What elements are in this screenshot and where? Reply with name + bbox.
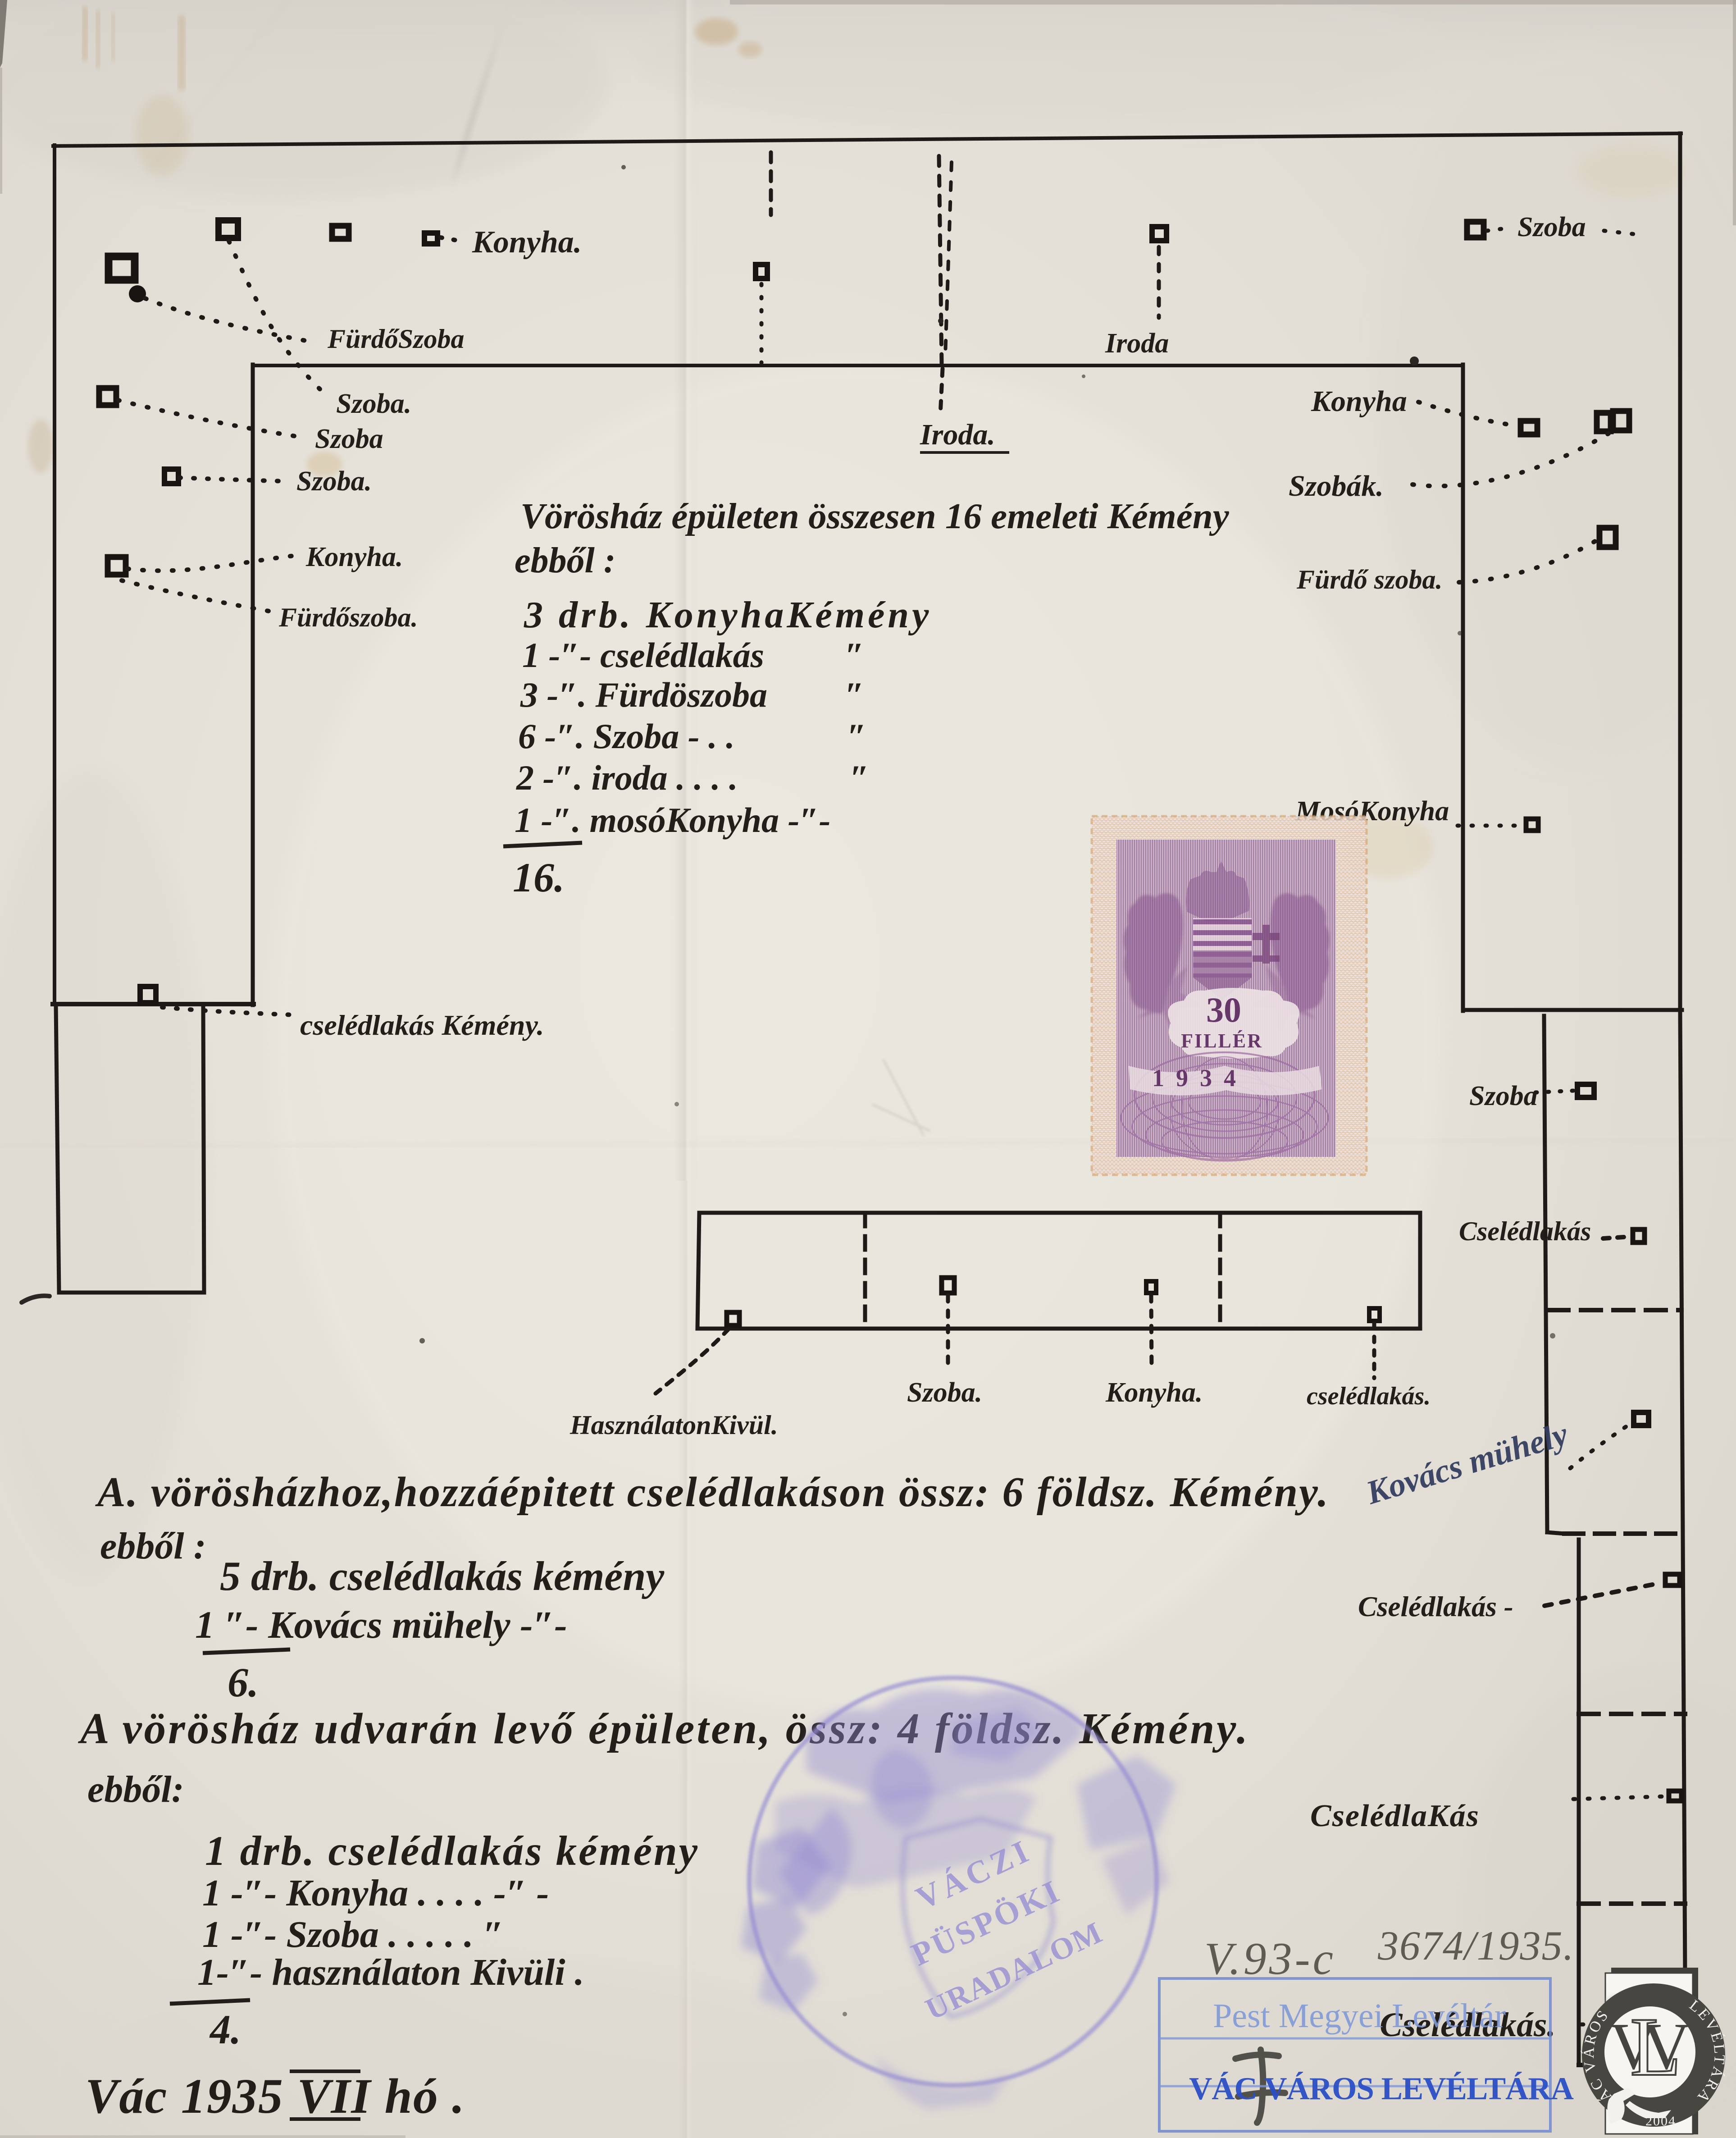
svg-text:A. vörösházhoz,hozzáépitett cs: A. vörösházhoz,hozzáépitett cselédlakáso… bbox=[95, 1469, 1330, 1516]
svg-text:30: 30 bbox=[1206, 990, 1241, 1029]
svg-text:Szobák.: Szobák. bbox=[1289, 470, 1384, 503]
svg-text:Iroda.: Iroda. bbox=[920, 418, 995, 451]
svg-text:Konyha: Konyha bbox=[1311, 385, 1407, 418]
svg-text:ebből:: ebből: bbox=[87, 1768, 184, 1810]
svg-text:Szoba: Szoba bbox=[315, 424, 383, 454]
svg-text:1 ″- Kovács mühely -″-: 1 ″- Kovács mühely -″- bbox=[195, 1603, 567, 1646]
svg-text:Fürdő szoba.: Fürdő szoba. bbox=[1296, 565, 1442, 594]
svg-text:Szoba: Szoba bbox=[1469, 1081, 1538, 1111]
svg-text:1 drb. cselédlakás kémény: 1 drb. cselédlakás kémény bbox=[205, 1828, 699, 1874]
svg-text:ebből :: ebből : bbox=[100, 1525, 206, 1567]
svg-text:Iroda: Iroda bbox=[1105, 328, 1169, 359]
svg-text:″: ″ bbox=[850, 758, 869, 797]
svg-text:1 -″- Szoba . . . . . ″: 1 -″- Szoba . . . . . ″ bbox=[202, 1914, 504, 1955]
svg-text:Vác 1935 VII hó .: Vác 1935 VII hó . bbox=[85, 2069, 465, 2124]
svg-text:Konyha.: Konyha. bbox=[305, 542, 403, 572]
svg-text:Konyha.: Konyha. bbox=[1105, 1377, 1203, 1408]
svg-text:2 -″. iroda . . . .: 2 -″. iroda . . . . bbox=[516, 758, 738, 797]
svg-text:6.: 6. bbox=[228, 1659, 259, 1705]
svg-text:CselédlaKás: CselédlaKás bbox=[1310, 1799, 1480, 1833]
svg-text:″: ″ bbox=[847, 717, 866, 756]
svg-text:Fürdőszoba.: Fürdőszoba. bbox=[278, 603, 418, 632]
svg-text:Cselédlakás -: Cselédlakás - bbox=[1358, 1591, 1513, 1622]
svg-text:1-″- használaton Kivüli .: 1-″- használaton Kivüli . bbox=[197, 1951, 584, 1993]
svg-text:Szoba: Szoba bbox=[1517, 212, 1586, 242]
svg-text:cselédlakás.: cselédlakás. bbox=[1307, 1382, 1431, 1410]
svg-text:1 -″. mosóKonyha -″-: 1 -″. mosóKonyha -″- bbox=[515, 800, 831, 840]
svg-text:Szoba.: Szoba. bbox=[907, 1377, 982, 1408]
svg-text:″: ″ bbox=[845, 675, 864, 714]
svg-text:Szoba.: Szoba. bbox=[336, 388, 411, 419]
svg-text:″: ″ bbox=[845, 635, 864, 675]
svg-text:Pest Megyei Levéltár: Pest Megyei Levéltár bbox=[1213, 1997, 1506, 2035]
svg-text:Vörösház épületen összesen 16: Vörösház épületen összesen 16 emeleti Ké… bbox=[520, 496, 1230, 536]
svg-text:Szoba.: Szoba. bbox=[296, 466, 372, 497]
svg-text:3 drb. KonyhaKémény: 3 drb. KonyhaKémény bbox=[524, 594, 932, 636]
svg-text:ebből :: ebből : bbox=[515, 541, 615, 580]
svg-text:3 -″. Fürdöszoba: 3 -″. Fürdöszoba bbox=[520, 675, 767, 714]
svg-text:6 -″. Szoba - . .: 6 -″. Szoba - . . bbox=[518, 717, 735, 756]
svg-text:VÁC VÁROS LEVÉLTÁRA: VÁC VÁROS LEVÉLTÁRA bbox=[1189, 2071, 1574, 2106]
svg-text:Konyha.: Konyha. bbox=[472, 225, 582, 260]
svg-text:16.: 16. bbox=[513, 854, 565, 900]
svg-text:FILLÉR: FILLÉR bbox=[1181, 1030, 1263, 1052]
svg-text:L: L bbox=[1630, 2001, 1681, 2093]
svg-text:4.: 4. bbox=[209, 2006, 241, 2052]
svg-text:HasználatonKivül.: HasználatonKivül. bbox=[570, 1410, 778, 1440]
svg-text:V.93-c: V.93-c bbox=[1204, 1933, 1336, 1984]
svg-text:3674/1935.: 3674/1935. bbox=[1377, 1923, 1575, 1969]
svg-text:Cselédlakás: Cselédlakás bbox=[1459, 1216, 1591, 1246]
svg-text:FürdőSzoba: FürdőSzoba bbox=[327, 324, 464, 354]
svg-text:1934: 1934 bbox=[1152, 1064, 1248, 1092]
svg-text:5 drb. cselédlakás kémény: 5 drb. cselédlakás kémény bbox=[220, 1553, 665, 1599]
svg-text:cselédlakás Kémény.: cselédlakás Kémény. bbox=[300, 1009, 544, 1041]
svg-text:1 -″- Konyha . . . . -″ -: 1 -″- Konyha . . . . -″ - bbox=[202, 1872, 549, 1914]
svg-text:1 -″- cselédlakás: 1 -″- cselédlakás bbox=[522, 635, 764, 675]
